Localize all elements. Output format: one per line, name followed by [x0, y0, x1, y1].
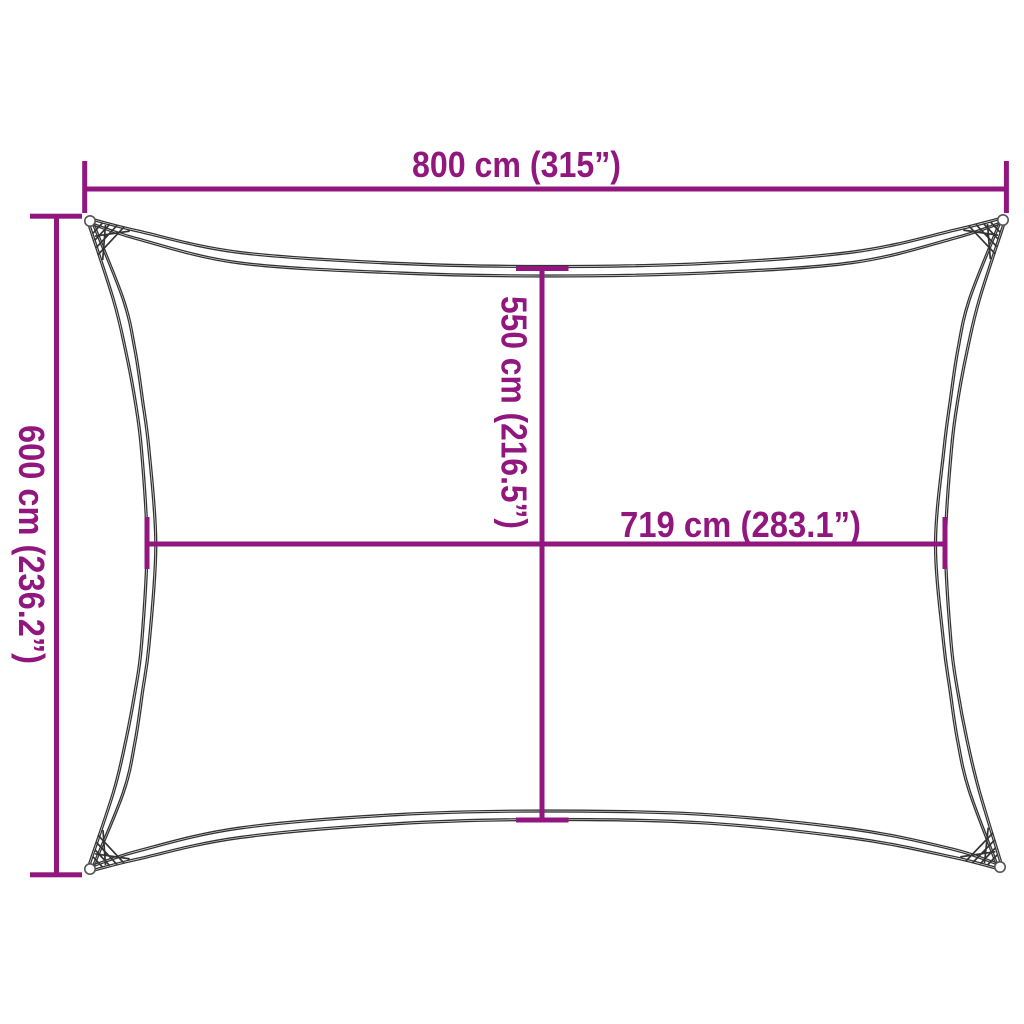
- svg-text:550 cm (216.5”): 550 cm (216.5”): [494, 296, 535, 529]
- svg-text:600 cm (236.2”): 600 cm (236.2”): [11, 425, 52, 664]
- svg-text:719 cm (283.1”): 719 cm (283.1”): [620, 504, 861, 545]
- svg-text:800 cm (315”): 800 cm (315”): [412, 144, 621, 185]
